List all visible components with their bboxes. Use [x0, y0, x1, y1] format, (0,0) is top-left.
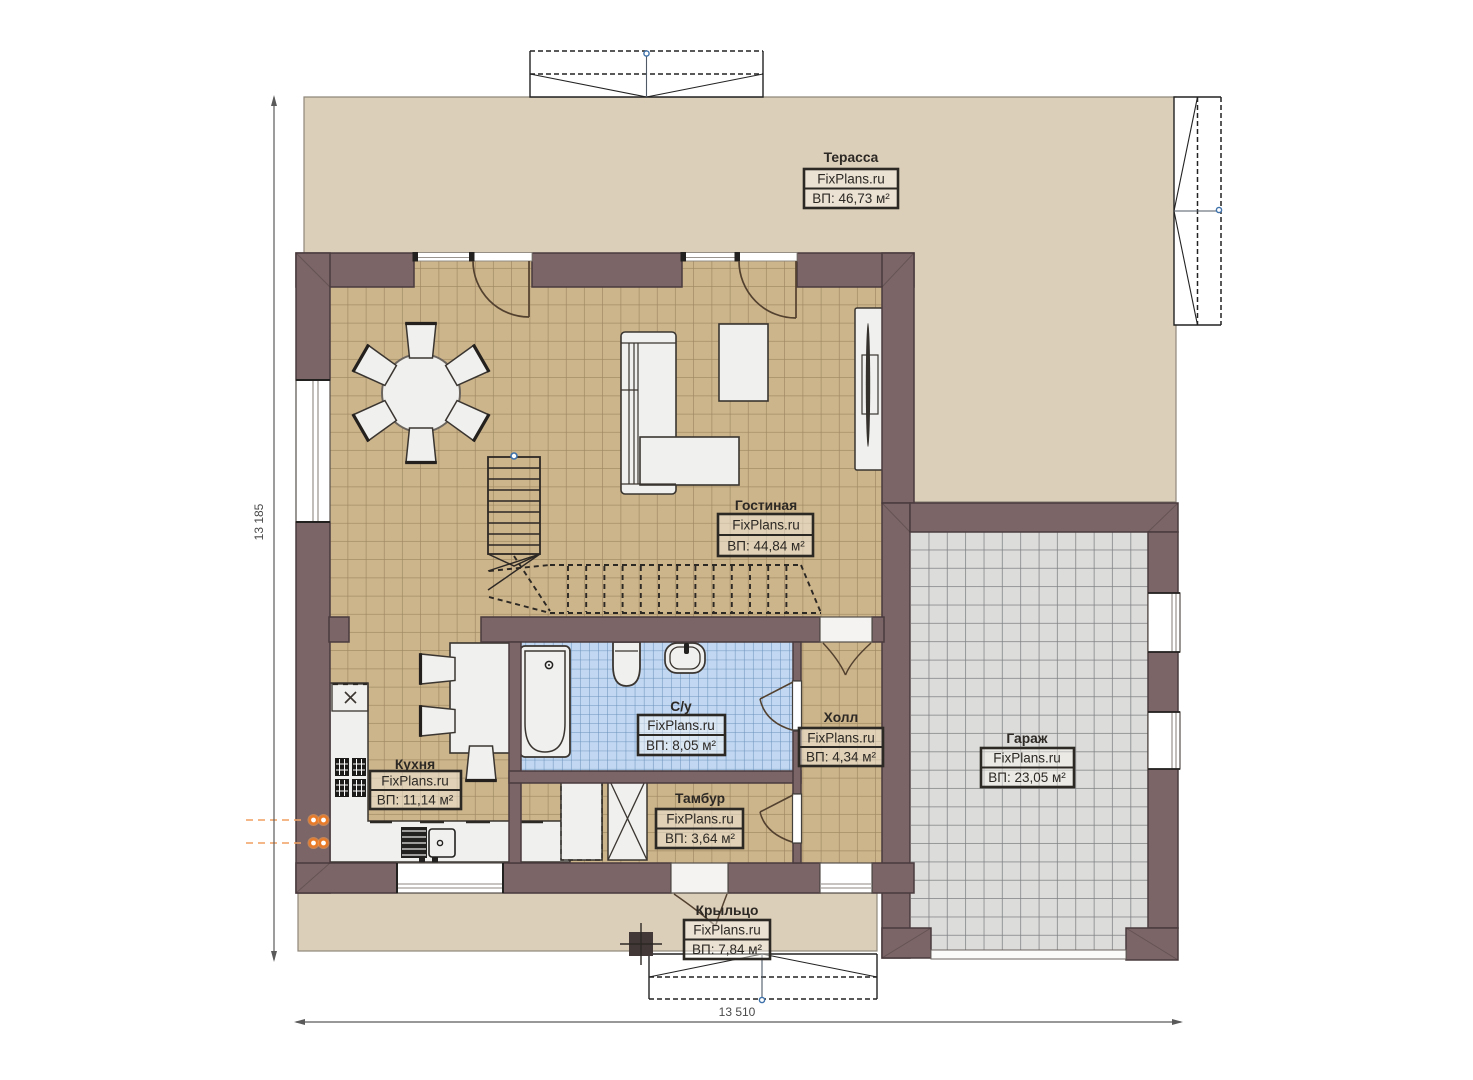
svg-text:FixPlans.ru: FixPlans.ru	[666, 812, 734, 827]
svg-text:FixPlans.ru: FixPlans.ru	[693, 923, 761, 938]
svg-text:FixPlans.ru: FixPlans.ru	[647, 718, 715, 733]
svg-text:FixPlans.ru: FixPlans.ru	[817, 172, 885, 187]
svg-text:ВП: 4,34 м²: ВП: 4,34 м²	[806, 749, 877, 764]
svg-text:ВП: 3,64 м²: ВП: 3,64 м²	[665, 831, 736, 846]
svg-text:Холл: Холл	[824, 710, 859, 725]
svg-text:Терасса: Терасса	[824, 150, 879, 165]
svg-text:FixPlans.ru: FixPlans.ru	[732, 517, 800, 532]
svg-text:Крыльцо: Крыльцо	[696, 903, 759, 918]
svg-text:ВП: 11,14 м²: ВП: 11,14 м²	[377, 792, 454, 807]
svg-text:ВП: 23,05 м²: ВП: 23,05 м²	[988, 770, 1066, 785]
svg-text:С/у: С/у	[670, 699, 692, 714]
svg-text:ВП: 7,84 м²: ВП: 7,84 м²	[692, 942, 763, 957]
svg-text:Тамбур: Тамбур	[675, 791, 725, 806]
svg-text:Гараж: Гараж	[1006, 731, 1047, 746]
svg-text:13 510: 13 510	[719, 1005, 756, 1019]
svg-text:13 185: 13 185	[252, 503, 266, 540]
svg-text:Гостиная: Гостиная	[735, 498, 797, 513]
svg-text:ВП: 8,05 м²: ВП: 8,05 м²	[646, 738, 717, 753]
svg-text:ВП: 46,73 м²: ВП: 46,73 м²	[812, 191, 890, 206]
svg-text:ВП: 44,84 м²: ВП: 44,84 м²	[727, 538, 805, 553]
svg-text:FixPlans.ru: FixPlans.ru	[807, 730, 875, 745]
svg-text:FixPlans.ru: FixPlans.ru	[993, 751, 1061, 766]
svg-text:FixPlans.ru: FixPlans.ru	[381, 773, 449, 788]
